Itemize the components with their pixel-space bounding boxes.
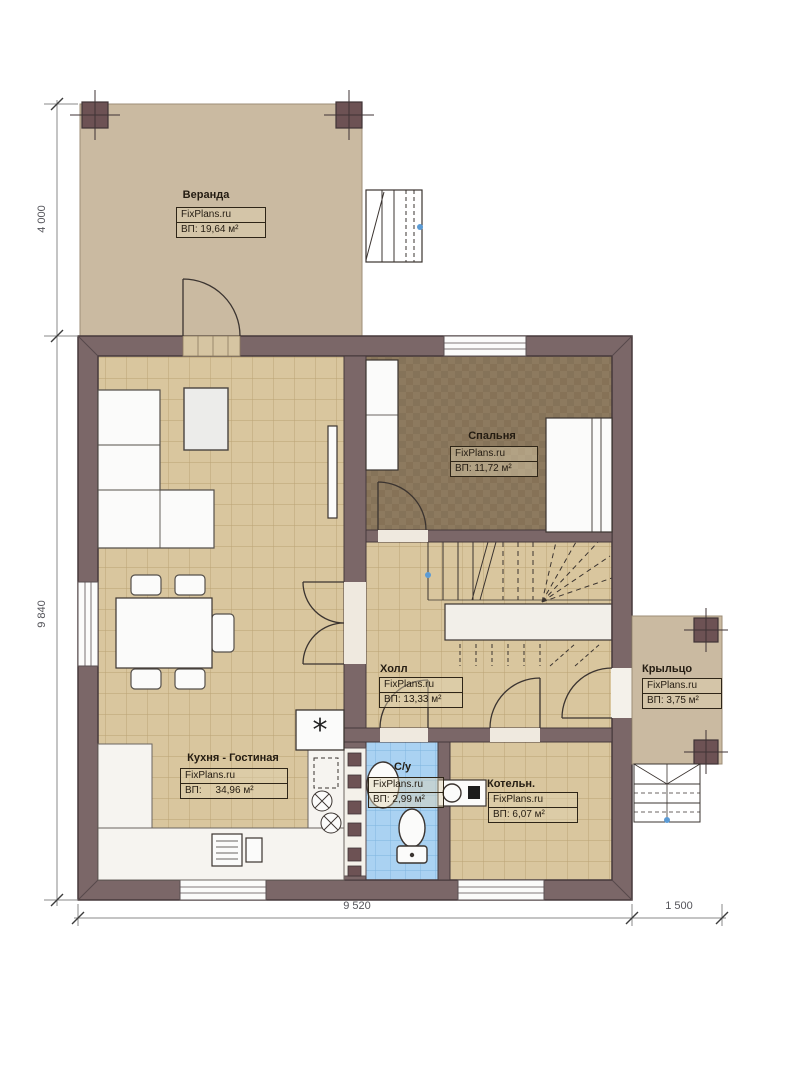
chair [212,614,234,652]
room-name-boiler: Котельн. [487,778,557,791]
room-label-bedroom: FixPlans.ru ВП: 11,72 м² [450,446,538,477]
window-kitchen-south [180,880,266,900]
vent-shaft [344,748,366,876]
window-bedroom-north [444,336,526,356]
floor-plan: * [0,0,792,1080]
dimension-veranda-depth: 4 000 [36,189,48,249]
room-name-bedroom: Спальня [444,430,540,443]
brand-label: FixPlans.ru [181,769,287,784]
stair-landing [445,604,612,640]
brand-label: FixPlans.ru [380,678,462,693]
room-label-veranda: FixPlans.ru ВП: 19,64 м² [176,207,266,238]
chair [175,575,205,595]
brand-label: FixPlans.ru [369,778,443,793]
area-label: ВП: 11,72 м² [451,462,537,476]
veranda-door-opening [183,336,240,356]
boiler-door-opening [490,728,540,742]
svg-text:*: * [313,713,328,748]
area-label: ВП: 19,64 м² [177,223,265,237]
bathroom-door-opening [380,728,428,742]
dimension-house-width: 9 520 [310,900,404,912]
brand-label: FixPlans.ru [643,679,721,694]
room-label-bathroom: FixPlans.ru ВП: 2,99 м² [368,777,444,808]
window-boiler-south [458,880,544,900]
boiler-unit [438,780,486,806]
stair-marker-dot [417,224,423,230]
dimension-house-depth: 9 840 [36,584,48,644]
room-name-porch: Крыльцо [642,663,722,676]
area-label: ВП: 2,99 м² [369,793,443,807]
room-name-veranda: Веранда [160,189,252,202]
bedroom-door-opening [378,530,428,542]
brand-label: FixPlans.ru [451,447,537,462]
floor-plan-drawing: * [0,0,792,1080]
room-name-kitchen: Кухня - Гостиная [166,752,300,765]
room-label-boiler: FixPlans.ru ВП: 6,07 м² [488,792,578,823]
area-label: ВП: 3,75 м² [643,694,721,708]
area-label: ВП: 13,33 м² [380,693,462,707]
room-name-bathroom: С/у [394,761,434,774]
room-label-kitchen: FixPlans.ru ВП: 34,96 м² [180,768,288,799]
entry-door-opening [611,668,633,718]
room-name-hall: Холл [380,663,450,676]
stair-marker-dot [664,817,670,823]
area-label: ВП: 34,96 м² [181,784,287,798]
oven [212,834,262,866]
stair-marker-dot [425,572,431,578]
double-door-opening [344,582,366,664]
bath-boiler-wall [438,742,450,880]
toilet [397,809,427,863]
porch-steps [634,764,700,823]
room-label-porch: FixPlans.ru ВП: 3,75 м² [642,678,722,709]
dimension-porch-width: 1 500 [648,900,710,912]
dining-table [116,598,212,668]
bed [546,418,612,532]
chair [131,575,161,595]
area-label: ВП: 6,07 м² [489,808,577,822]
coffee-table [184,388,228,450]
tv [328,426,337,518]
room-label-hall: FixPlans.ru ВП: 13,33 м² [379,677,463,708]
window-living-west [78,582,98,666]
porch-area [632,608,728,823]
chair [175,669,205,689]
veranda-exterior-stairs [366,190,423,262]
chair [131,669,161,689]
brand-label: FixPlans.ru [489,793,577,808]
brand-label: FixPlans.ru [177,208,265,223]
